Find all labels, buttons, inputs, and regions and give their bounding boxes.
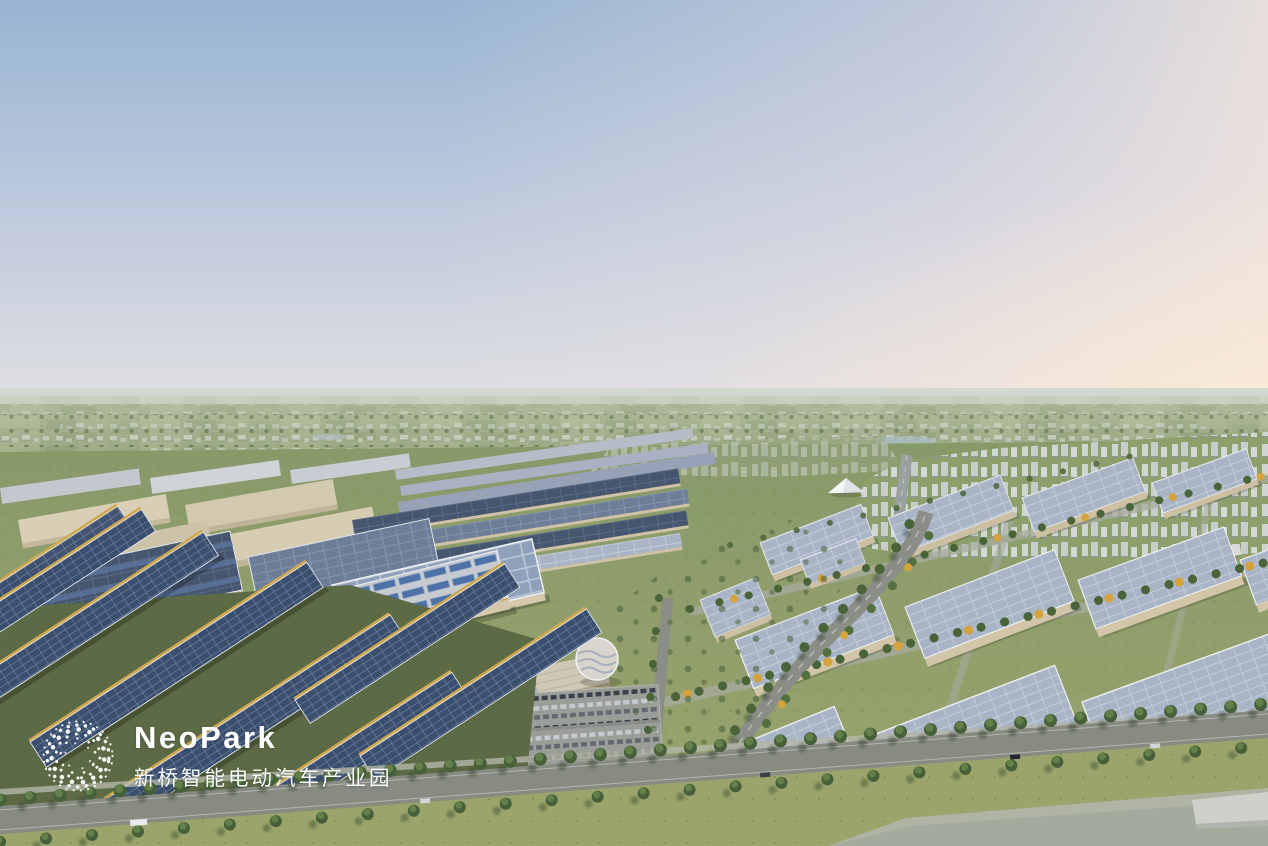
logo-text: NeoPark 新桥智能电动汽车产业园	[134, 721, 393, 790]
brand-name: NeoPark	[134, 721, 393, 755]
aerial-rendering: NeoPark 新桥智能电动汽车产业园	[0, 0, 1268, 846]
neopark-dot-ring-icon	[36, 714, 120, 798]
sky	[0, 0, 1268, 430]
neopark-logo: NeoPark 新桥智能电动汽车产业园	[36, 714, 393, 798]
brand-subtitle: 新桥智能电动汽车产业园	[134, 761, 393, 791]
